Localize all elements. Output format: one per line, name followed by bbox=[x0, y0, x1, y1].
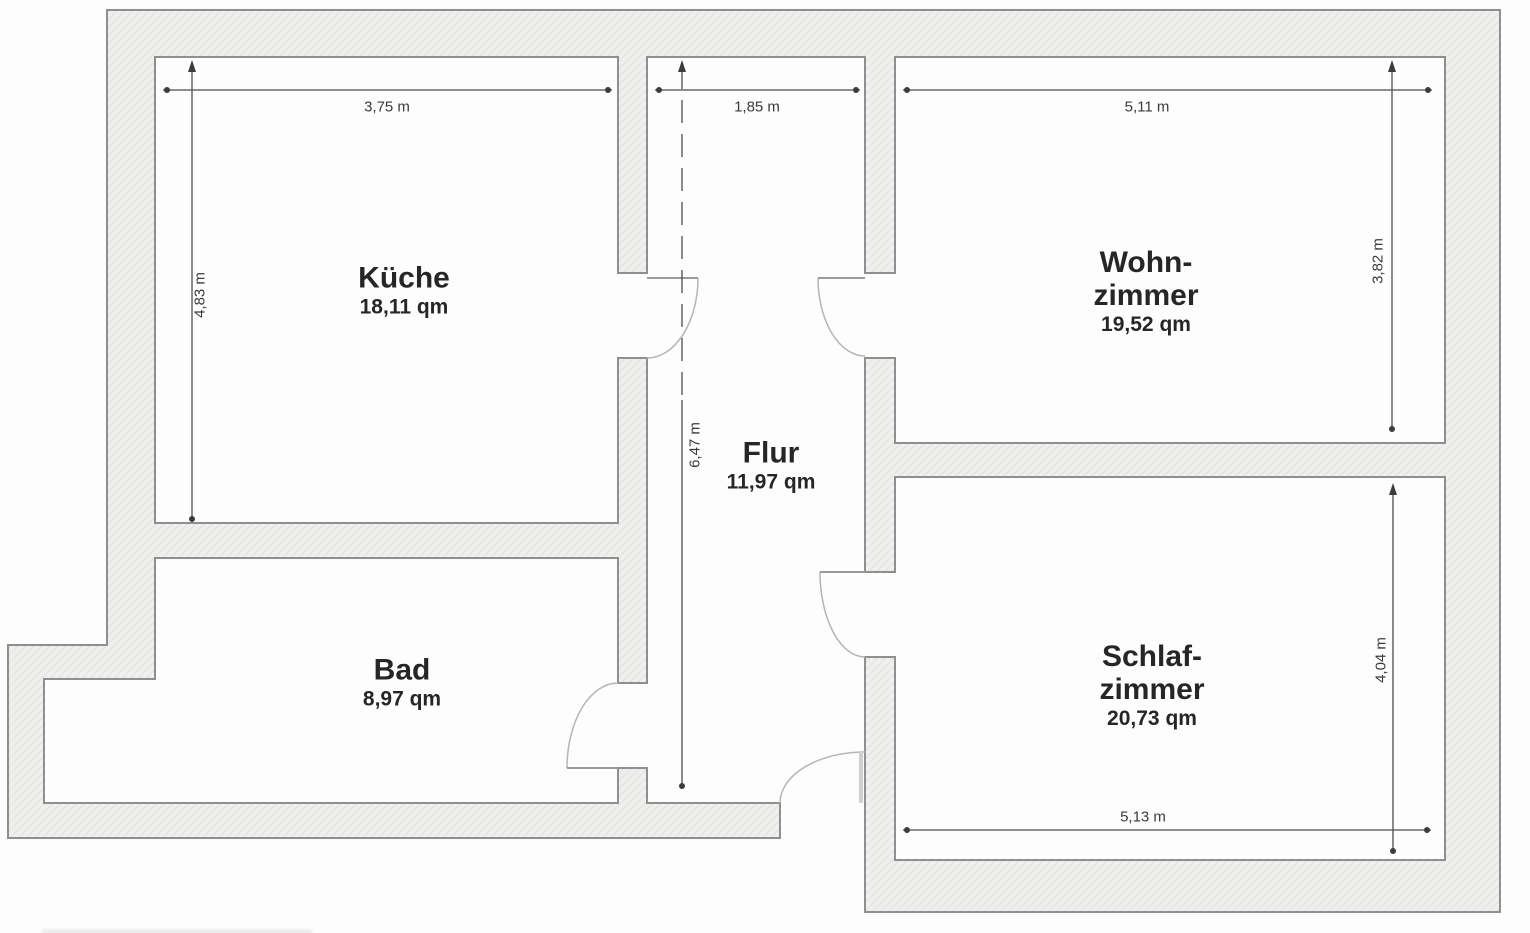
kueche-door bbox=[647, 278, 698, 358]
dim-arrow-up bbox=[188, 60, 196, 72]
room-label-kueche: Küche 18,11 qm bbox=[358, 262, 450, 321]
room-area: 11,97 qm bbox=[727, 470, 816, 496]
door-arc bbox=[820, 572, 865, 657]
dim-label-schlafzimmer-height: 4,04 m bbox=[1373, 637, 1390, 683]
dim-end-dot bbox=[656, 87, 662, 93]
room-label-schlafzimmer: Schlaf- zimmer 20,73 qm bbox=[1099, 640, 1204, 732]
door-arc bbox=[780, 752, 865, 803]
dim-end-dot bbox=[679, 783, 685, 789]
room-name-line2: zimmer bbox=[1099, 673, 1204, 706]
room-label-flur: Flur 11,97 qm bbox=[727, 437, 816, 496]
dim-end-dot bbox=[853, 87, 859, 93]
room-label-bad: Bad 8,97 qm bbox=[363, 654, 441, 713]
entrance-door bbox=[780, 752, 865, 803]
dim-arrow-up bbox=[1388, 60, 1396, 72]
dim-label-flur-height: 6,47 m bbox=[687, 422, 704, 468]
dim-end-dot bbox=[1425, 87, 1431, 93]
dim-label-wohnzimmer-height: 3,82 m bbox=[1370, 238, 1387, 284]
dim-end-dot bbox=[189, 516, 195, 522]
room-name: Bad bbox=[363, 654, 441, 687]
dim-label-wohnzimmer-width: 5,11 m bbox=[1125, 99, 1170, 116]
room-area: 19,52 qm bbox=[1093, 312, 1198, 338]
room-area: 18,11 qm bbox=[358, 295, 450, 321]
room-name: Flur bbox=[727, 437, 816, 470]
dim-arrow-up bbox=[678, 60, 686, 72]
room-label-wohnzimmer: Wohn- zimmer 19,52 qm bbox=[1093, 246, 1198, 338]
dim-end-dot bbox=[1424, 827, 1430, 833]
dim-end-dot bbox=[164, 87, 170, 93]
dim-end-dot bbox=[904, 827, 910, 833]
dim-end-dot bbox=[904, 87, 910, 93]
dim-label-flur-width: 1,85 m bbox=[734, 99, 780, 116]
room-area: 20,73 qm bbox=[1099, 706, 1204, 732]
wohnzimmer-door bbox=[818, 278, 865, 356]
door-arc bbox=[818, 278, 865, 356]
room-area: 8,97 qm bbox=[363, 687, 441, 713]
dim-label-schlafzimmer-width: 5,13 m bbox=[1120, 809, 1166, 826]
dim-label-kueche-width: 3,75 m bbox=[364, 99, 410, 116]
dim-arrow-up bbox=[1389, 483, 1397, 495]
scan-artifact-cropped-text bbox=[42, 929, 312, 933]
room-name: Küche bbox=[358, 262, 450, 295]
bad-door bbox=[567, 683, 618, 768]
floor-plan: Küche 18,11 qm Flur 11,97 qm Wohn- zimme… bbox=[0, 0, 1530, 933]
room-name-line2: zimmer bbox=[1093, 279, 1198, 312]
dim-end-dot bbox=[605, 87, 611, 93]
room-name-line1: Schlaf- bbox=[1099, 640, 1204, 673]
door-arc bbox=[567, 683, 618, 768]
room-name-line1: Wohn- bbox=[1093, 246, 1198, 279]
schlafzimmer-door bbox=[820, 572, 865, 657]
door-arc bbox=[647, 278, 698, 358]
dim-label-kueche-height: 4,83 m bbox=[192, 272, 209, 318]
dim-end-dot bbox=[1389, 426, 1395, 432]
dim-end-dot bbox=[1390, 848, 1396, 854]
